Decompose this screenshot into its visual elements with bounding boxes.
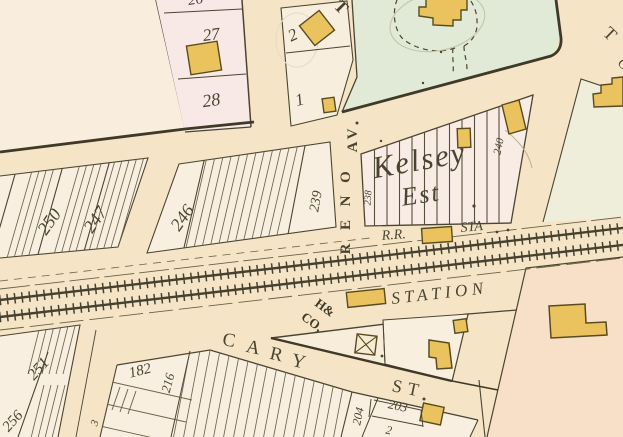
svg-text:R.R.: R.R.	[380, 227, 406, 244]
svg-text:R: R	[338, 243, 354, 254]
svg-text:V: V	[345, 128, 361, 139]
svg-text:A: A	[345, 141, 361, 152]
svg-text:N: N	[338, 195, 354, 206]
svg-text:238: 238	[362, 190, 374, 206]
svg-text:E: E	[338, 220, 354, 230]
svg-text:STA: STA	[460, 219, 484, 236]
svg-text:O: O	[338, 171, 354, 183]
svg-text:28: 28	[201, 89, 222, 111]
svg-text:Est: Est	[398, 177, 442, 211]
